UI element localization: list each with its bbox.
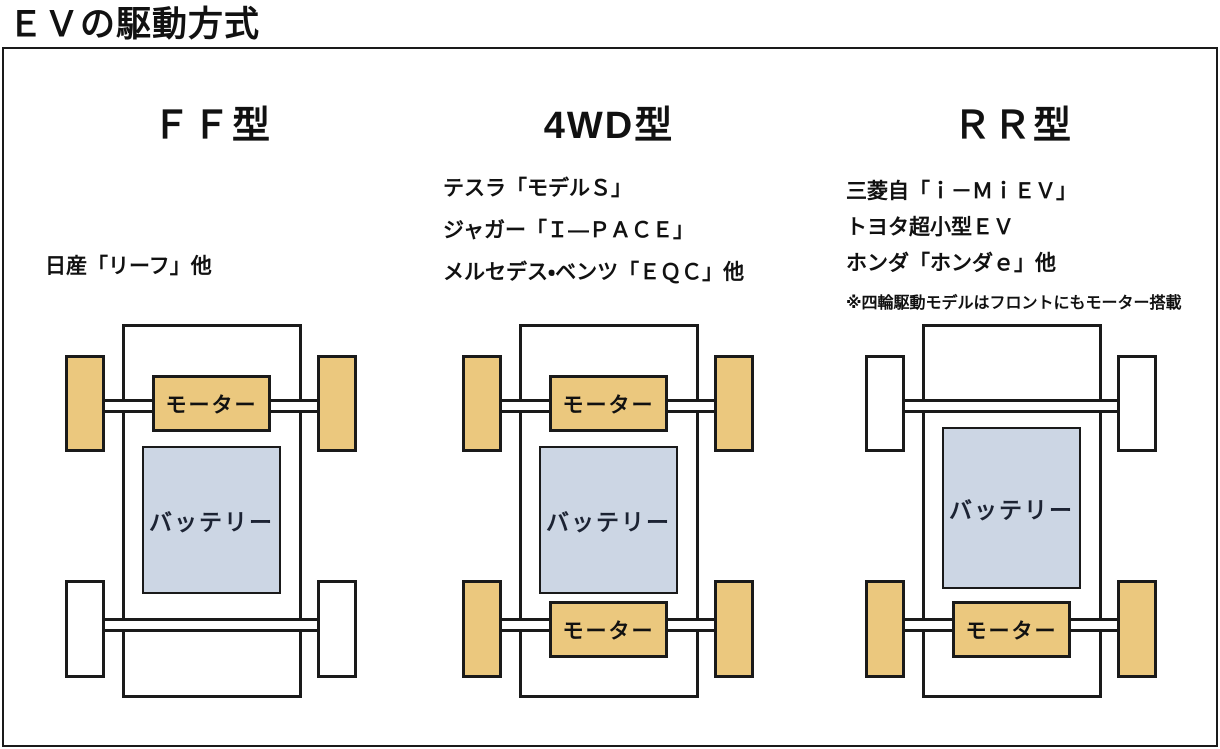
model-line: トヨタ超小型ＥＶ [846,211,1077,247]
model-list-rr: 三菱自「ｉ－ＭｉＥＶ」 トヨタ超小型ＥＶ ホンダ「ホンダｅ」他 [846,175,1077,283]
battery-box: バッテリー [539,446,678,594]
battery-box: バッテリー [142,446,281,594]
model-line: 三菱自「ｉ－ＭｉＥＶ」 [846,175,1077,211]
wheel-rear-right [317,580,357,678]
wheel-front-left [462,355,502,452]
wheel-front-left [865,355,905,452]
wheel-rear-left [865,580,905,678]
wheel-rear-right [714,580,754,678]
page-title: ＥＶの駆動方式 [8,0,260,47]
wheel-front-right [317,355,357,452]
motor-label: モーター [563,615,655,645]
model-list-ff: 日産「リーフ」他 [45,250,212,280]
model-line: 日産「リーフ」他 [45,250,212,280]
battery-label: バッテリー [949,491,1074,525]
column-title-4wd: 4WD型 [459,94,759,149]
wheel-rear-left [65,580,105,678]
wheel-front-left [65,355,105,452]
model-line: ジャガー「Ｉ―ＰＡＣＥ」 [443,214,744,256]
wheel-rear-left [462,580,502,678]
front-axle [868,399,1157,413]
battery-label: バッテリー [546,503,671,537]
motor-label: モーター [563,389,655,419]
battery-label: バッテリー [149,503,274,537]
column-title-ff: ＦＦ型 [62,94,362,149]
model-line: ホンダ「ホンダｅ」他 [846,247,1077,283]
wheel-front-right [714,355,754,452]
motor-label: モーター [166,389,258,419]
model-list-4wd: テスラ「モデルＳ」 ジャガー「Ｉ―ＰＡＣＥ」 メルセデス・ベンツ「ＥＱＣ」他 [443,172,744,298]
car-diagram-rr: モーター バッテリー [865,324,1160,698]
motor-box-rear: モーター [952,601,1071,658]
rr-footnote: ※四輪駆動モデルはフロントにもモーター搭載 [846,289,1182,313]
column-title-rr: ＲＲ型 [863,94,1163,149]
car-diagram-ff: モーター バッテリー [65,324,360,698]
motor-box-rear: モーター [549,601,668,658]
motor-label: モーター [966,615,1058,645]
infographic-canvas: ＥＶの駆動方式 ＦＦ型 4WD型 ＲＲ型 日産「リーフ」他 テスラ「モデルＳ」 … [0,0,1220,749]
wheel-rear-right [1117,580,1157,678]
car-diagram-4wd: モーター モーター バッテリー [462,324,757,698]
motor-box-front: モーター [152,375,271,432]
model-line: メルセデス・ベンツ「ＥＱＣ」他 [443,256,744,298]
battery-box: バッテリー [942,427,1081,589]
rear-axle [68,618,357,632]
wheel-front-right [1117,355,1157,452]
motor-box-front: モーター [549,375,668,432]
model-line: テスラ「モデルＳ」 [443,172,744,214]
